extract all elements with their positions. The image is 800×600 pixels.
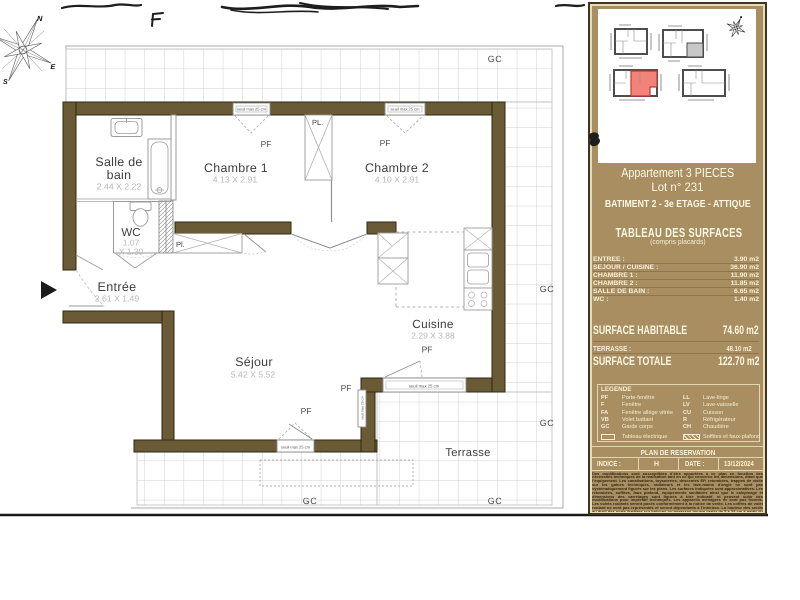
svg-text:Séjour: Séjour [235, 355, 273, 369]
svg-text:PL.: PL. [312, 118, 323, 127]
svg-text:bain: bain [107, 168, 132, 182]
svg-text:E: E [51, 64, 56, 71]
svg-text:Cuisine: Cuisine [412, 317, 454, 331]
svg-text:5.42 X 5.52: 5.42 X 5.52 [231, 370, 276, 380]
svg-text:Terrasse: Terrasse [445, 447, 490, 459]
svg-text:GC: GC [488, 496, 503, 506]
svg-text:GC: GC [540, 284, 555, 294]
svg-text:Chambre 1: Chambre 1 [204, 161, 268, 175]
svg-text:PF: PF [261, 139, 272, 149]
svg-text:GC: GC [488, 54, 503, 64]
svg-text:Pl.: Pl. [176, 240, 185, 249]
svg-text:4.10 X 2.91: 4.10 X 2.91 [375, 175, 420, 185]
svg-text:S: S [3, 79, 8, 86]
svg-text:N: N [37, 14, 43, 23]
svg-text:PF: PF [422, 345, 433, 355]
svg-text:2.44 X 2.22: 2.44 X 2.22 [97, 182, 142, 192]
svg-text:4.13 X 2.91: 4.13 X 2.91 [213, 175, 258, 185]
svg-text:PF: PF [380, 138, 391, 148]
svg-text:seuil max 25 cm: seuil max 25 cm [409, 383, 440, 388]
svg-text:X 1.30: X 1.30 [119, 247, 144, 257]
svg-text:GC: GC [540, 418, 555, 428]
svg-text:2.29 X 3.88: 2.29 X 3.88 [411, 331, 455, 341]
svg-text:Salle de: Salle de [95, 155, 142, 169]
svg-text:PF: PF [301, 406, 312, 416]
svg-text:GC: GC [303, 496, 318, 506]
svg-text:seuil max 25 cm: seuil max 25 cm [281, 445, 311, 450]
svg-text:seuil max 25 cm: seuil max 25 cm [391, 107, 421, 112]
svg-text:seuil max 25 cm: seuil max 25 cm [237, 107, 267, 112]
svg-text:2.61 X 1.49: 2.61 X 1.49 [95, 294, 140, 304]
svg-text:seuil max 25 cm: seuil max 25 cm [361, 396, 365, 420]
svg-text:Chambre 2: Chambre 2 [365, 161, 429, 175]
svg-text:PF: PF [341, 383, 352, 393]
svg-text:Entrée: Entrée [98, 280, 137, 294]
